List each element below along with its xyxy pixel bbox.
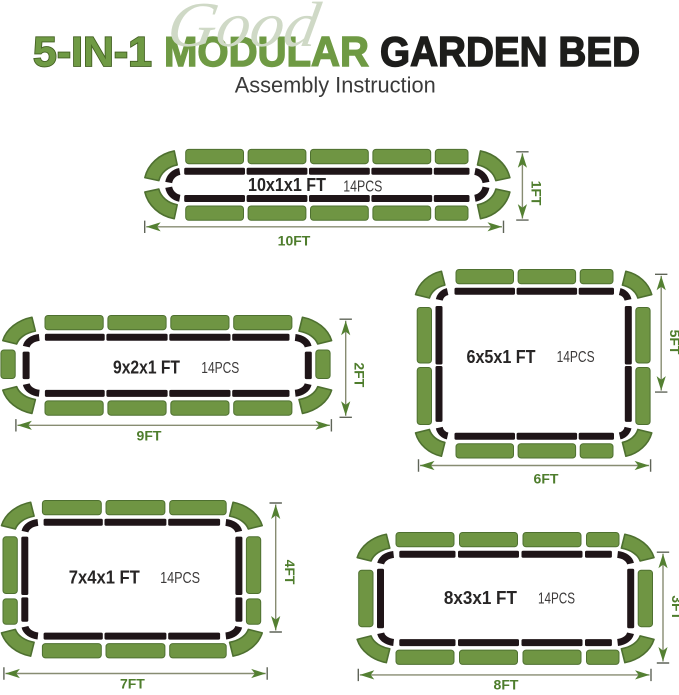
svg-text:2FT: 2FT (352, 362, 368, 387)
svg-text:9FT: 9FT (137, 428, 162, 444)
svg-text:14PCS: 14PCS (557, 349, 595, 366)
svg-text:GARDEN BED: GARDEN BED (380, 28, 640, 75)
svg-text:9x2x1 FT: 9x2x1 FT (113, 357, 181, 378)
svg-text:14PCS: 14PCS (160, 570, 200, 587)
svg-text:5FT: 5FT (667, 330, 679, 355)
svg-text:10x1x1 FT: 10x1x1 FT (248, 174, 327, 195)
svg-text:7FT: 7FT (120, 676, 145, 691)
svg-text:1FT: 1FT (529, 181, 545, 206)
svg-text:Assembly Instruction: Assembly Instruction (235, 73, 436, 98)
svg-text:14PCS: 14PCS (343, 179, 382, 196)
svg-text:Good: Good (163, 0, 326, 60)
svg-text:4FT: 4FT (282, 560, 298, 585)
svg-text:10FT: 10FT (278, 233, 311, 249)
svg-text:8FT: 8FT (494, 677, 519, 691)
svg-text:6x5x1 FT: 6x5x1 FT (467, 346, 537, 367)
svg-text:8x3x1 FT: 8x3x1 FT (444, 587, 518, 608)
svg-text:14PCS: 14PCS (201, 360, 239, 377)
svg-text:3FT: 3FT (669, 595, 679, 620)
svg-text:14PCS: 14PCS (538, 591, 575, 608)
svg-text:5-IN-1: 5-IN-1 (33, 28, 152, 75)
svg-text:6FT: 6FT (534, 471, 559, 487)
svg-text:7x4x1 FT: 7x4x1 FT (69, 567, 141, 588)
